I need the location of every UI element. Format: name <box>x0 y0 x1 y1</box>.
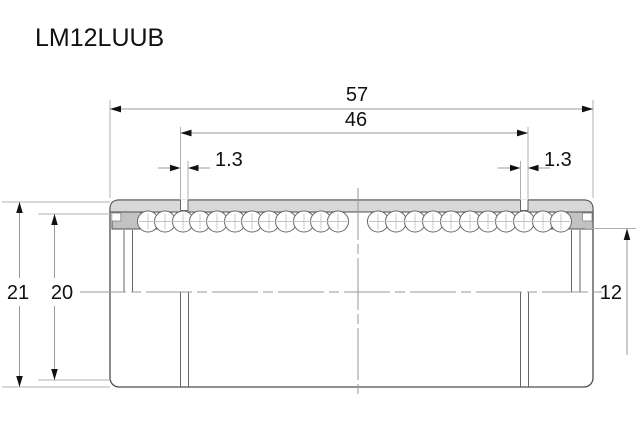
snap-ring-groove-left <box>181 200 189 211</box>
dimension-groove-diameter: 20 <box>38 214 110 380</box>
seal-pocket-lines-right <box>572 230 581 292</box>
drawing-canvas: LM12LUUB <box>0 0 640 440</box>
dim-label-57: 57 <box>346 84 368 106</box>
seal-groove-notch-left <box>112 213 121 221</box>
dim-label-1.3-right: 1.3 <box>544 149 572 171</box>
seal-pocket-lines-left <box>124 230 133 292</box>
part-number-title: LM12LUUB <box>35 24 164 52</box>
dim-label-21: 21 <box>7 282 29 304</box>
end-cap-seam-right <box>521 292 529 387</box>
dimension-groove-width-right: 1.3 <box>498 149 572 199</box>
end-cap-seam-left <box>181 292 189 387</box>
snap-ring-groove-right <box>521 200 529 211</box>
seal-groove-notch-right <box>583 213 593 221</box>
dim-label-20: 20 <box>51 282 73 304</box>
dim-label-1.3-left: 1.3 <box>215 149 243 171</box>
dim-label-12: 12 <box>600 282 622 304</box>
dimension-groove-width-left: 1.3 <box>158 149 243 199</box>
dim-label-46: 46 <box>345 109 367 131</box>
bearing-drawing: LM12LUUB <box>0 0 640 440</box>
